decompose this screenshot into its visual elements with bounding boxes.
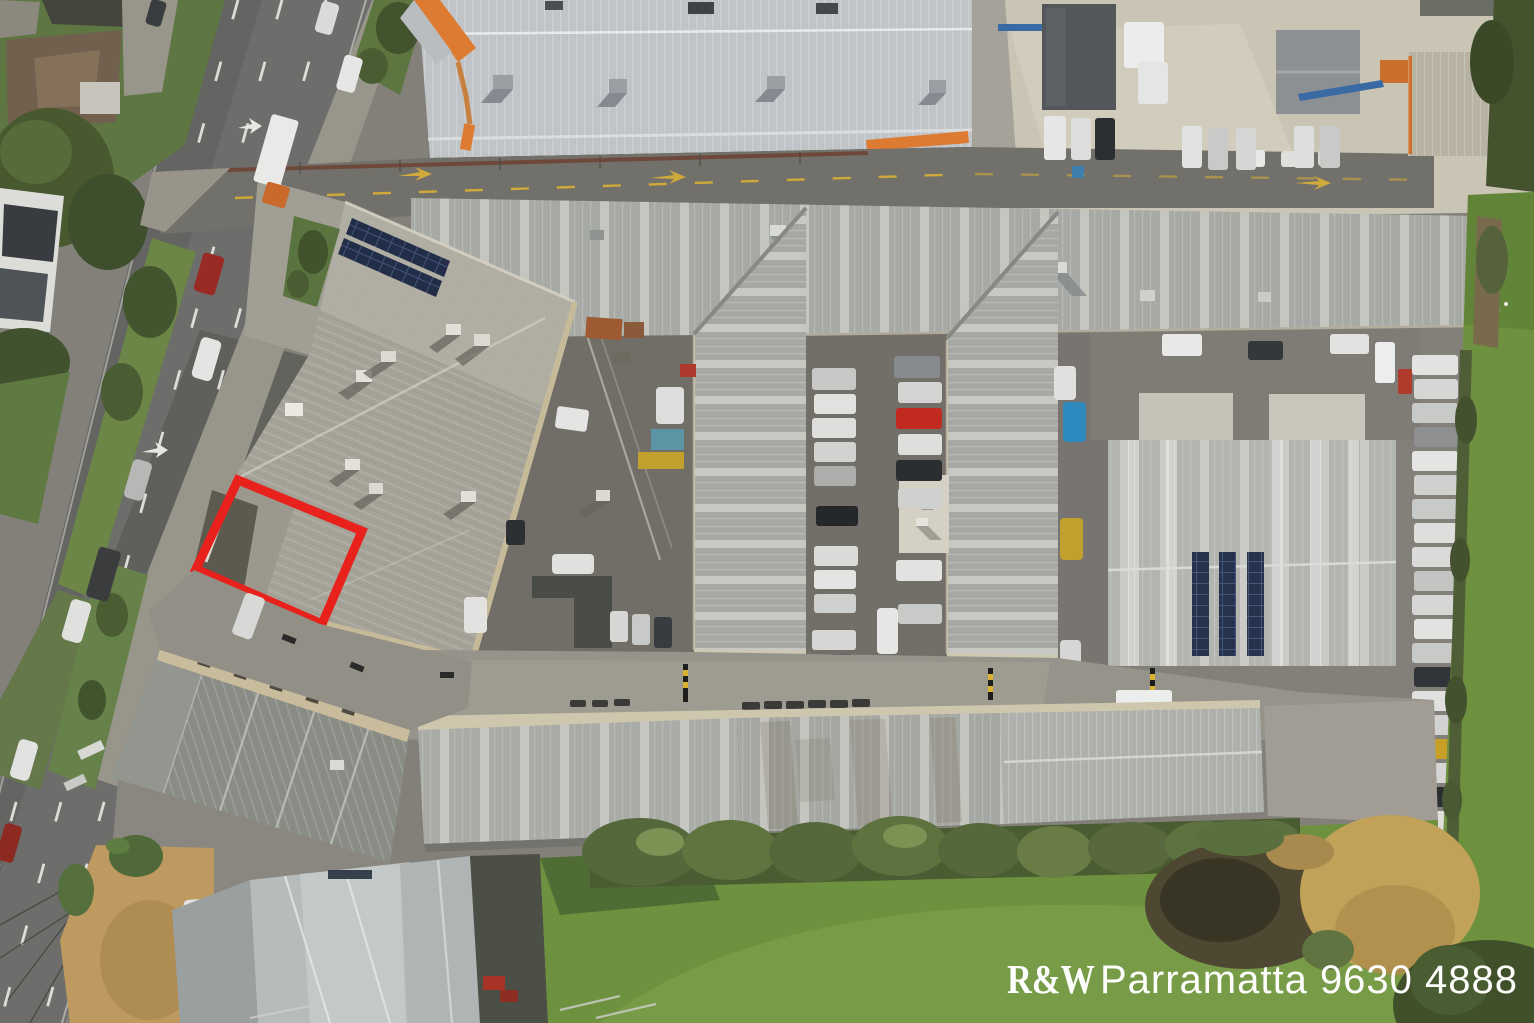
svg-text:Parramatta 9630 4888: Parramatta 9630 4888 <box>1100 958 1518 1002</box>
svg-text:R&W: R&W <box>1007 956 1095 1002</box>
